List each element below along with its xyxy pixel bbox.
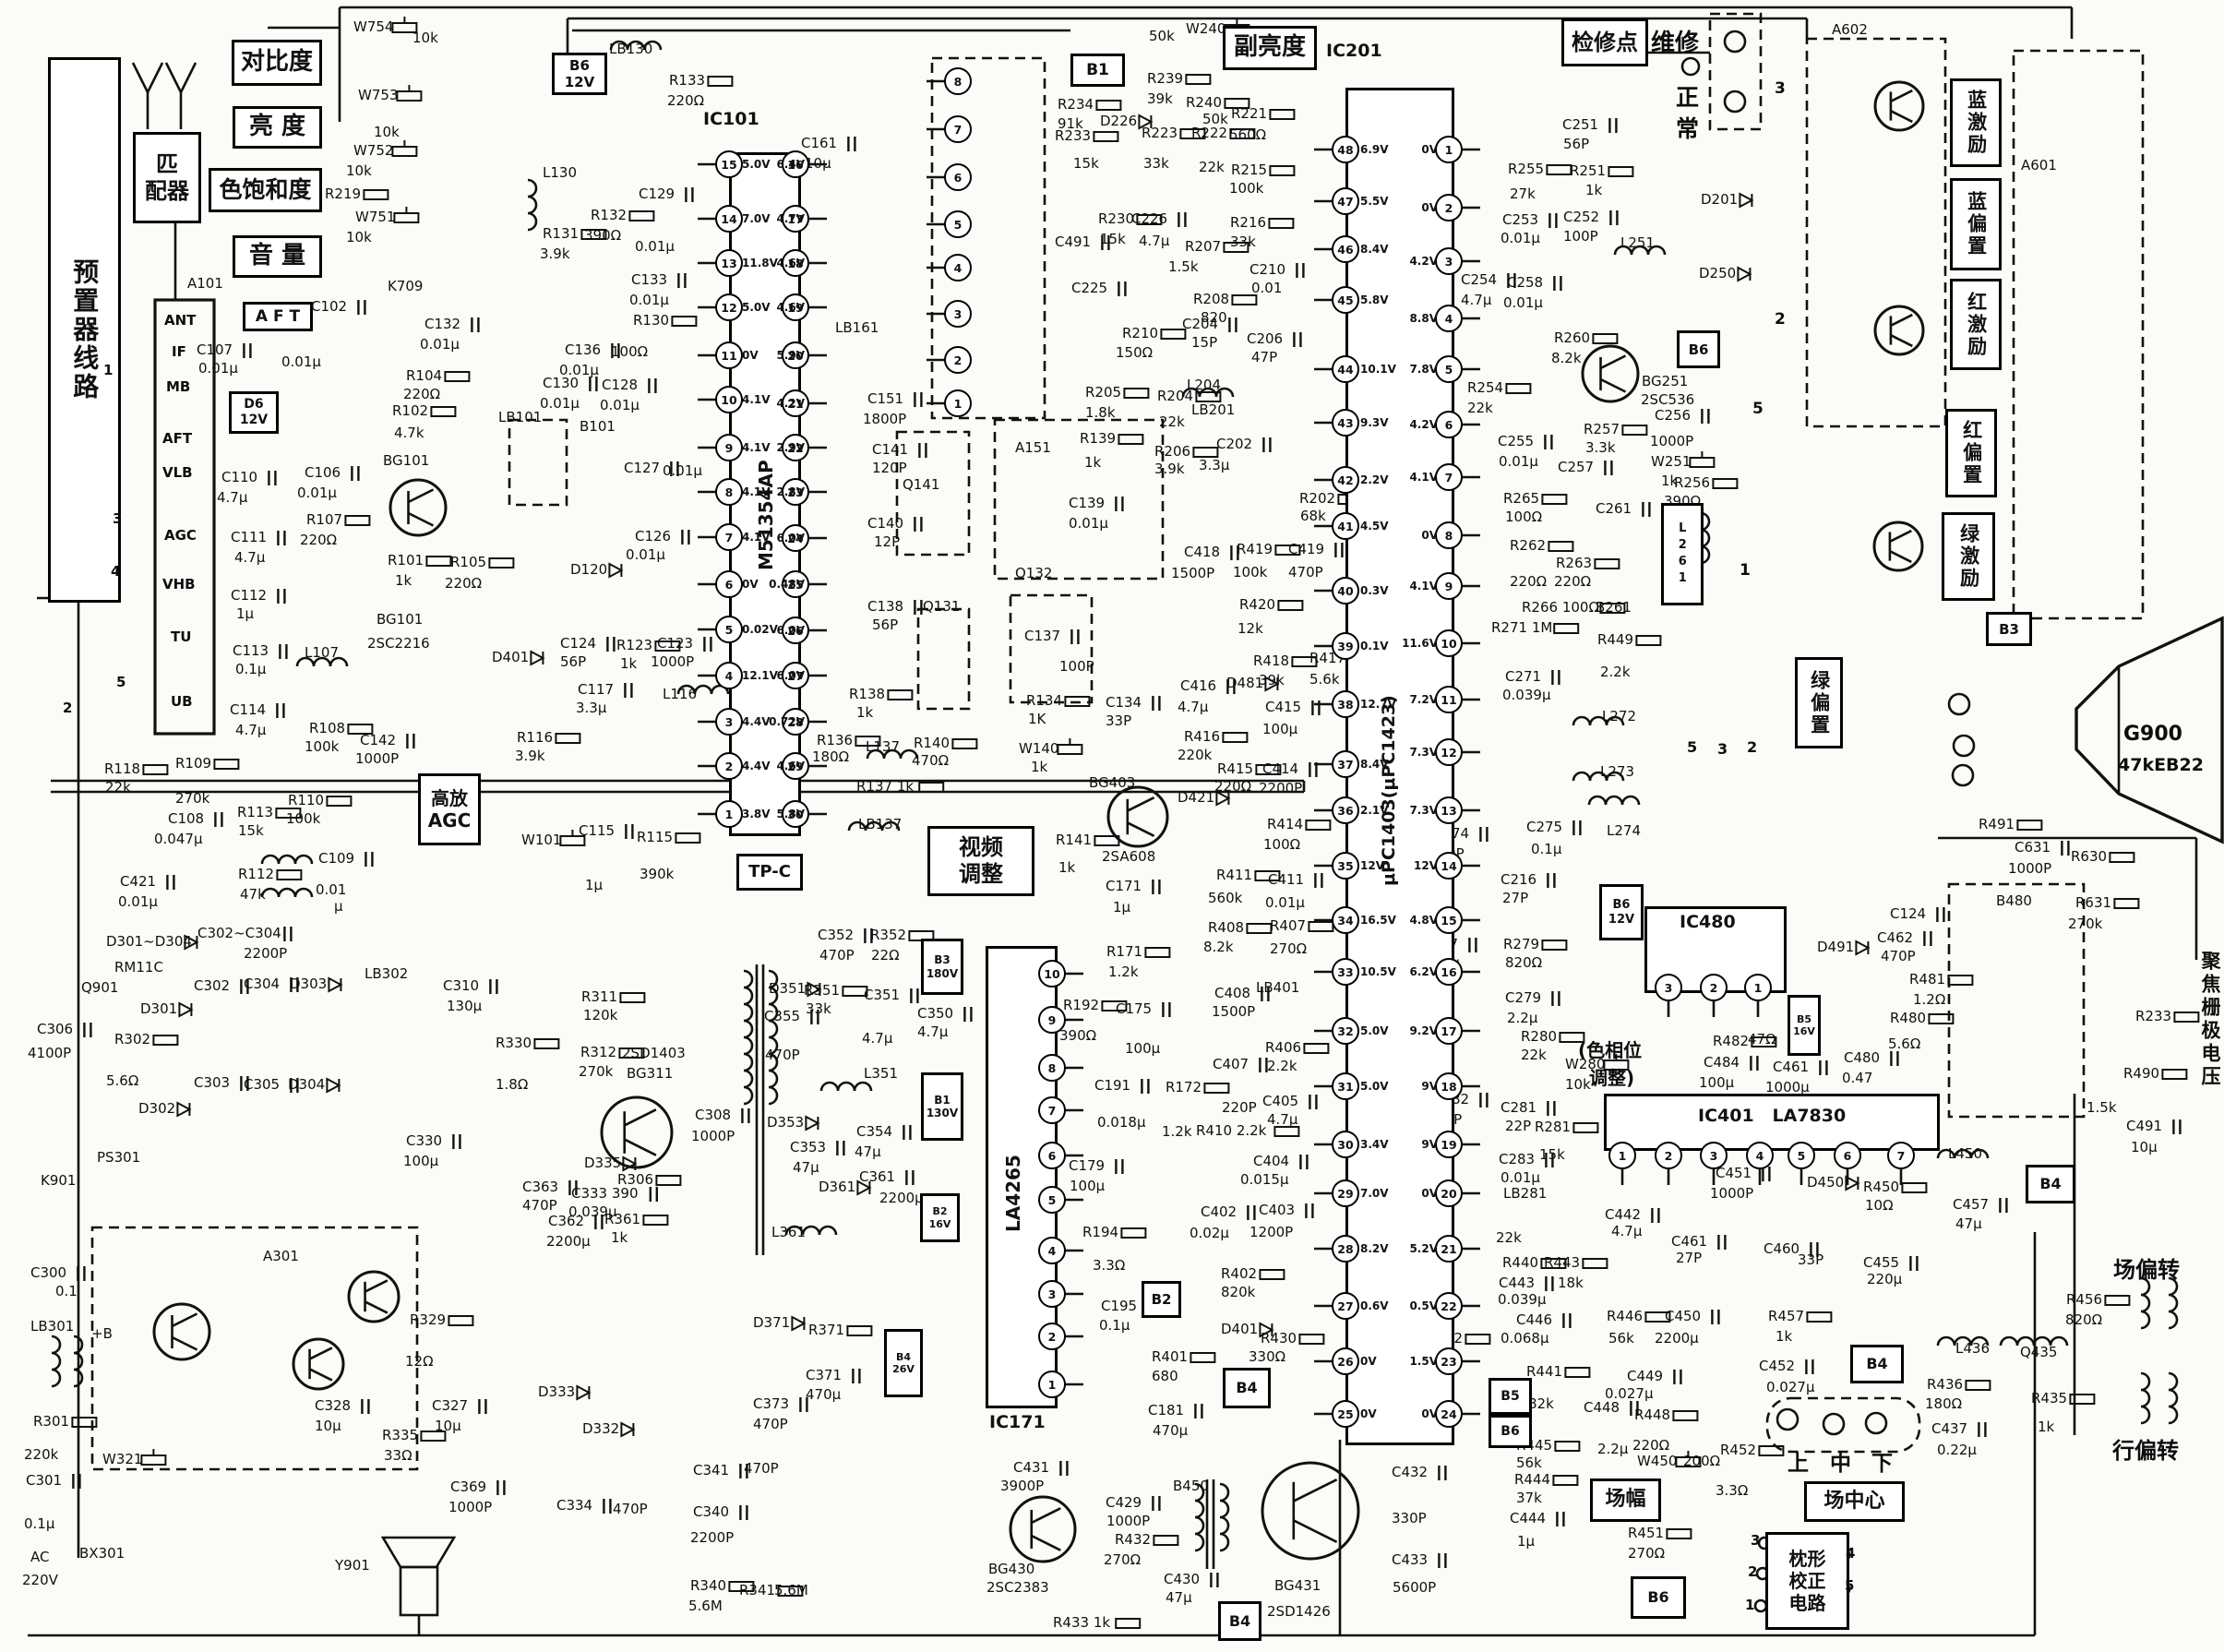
speaker-icon [383,1538,454,1567]
block-box: B4 [1223,1368,1271,1408]
component-label: 5.6Ω [1888,1037,1920,1052]
component-label: C123 [657,637,693,652]
pin-voltage: 12.7V [1360,698,1396,711]
component-label: 0.01μ [1501,232,1540,246]
component-label: 0.01μ [118,895,158,910]
component-label: 1k [1058,861,1075,876]
resistor-symbol [1554,624,1578,633]
component-label: R204 [1157,389,1193,404]
pin-voltage: 5.0V [742,301,771,314]
component-label: 3.9k [515,749,545,764]
ic-pin: 20 [1435,1179,1463,1207]
terminal-circle [1953,765,1973,785]
component-label: LB401 [1256,981,1299,996]
text-label: 2 [63,700,72,716]
component-label: 1000P [651,655,694,670]
component-label: 100Ω [611,345,648,360]
pin-voltage: 4.4V [742,715,771,728]
resistor-symbol [1807,1312,1831,1322]
component-label: C431 [1013,1461,1049,1476]
component-label: 2SC536 [1641,393,1694,408]
component-label: C127 [624,461,660,476]
resistor-symbol [1553,1476,1577,1485]
component-label: 470P [522,1199,557,1214]
ic-pin: 4 [1435,305,1463,332]
component-label: R415 [1217,762,1253,777]
component-label: 1000P [691,1130,735,1144]
pin-voltage: 5.5V [1360,195,1389,208]
pin-voltage: 0V [1360,1407,1377,1420]
component-label: 220Ω [1554,575,1591,590]
component-label: A601 [2021,159,2057,174]
block-box: 色饱和度 [209,168,322,212]
block-box: B3 180V [921,939,963,995]
component-label: C340 [693,1505,729,1520]
component-label: C108 [168,812,204,827]
ic-pin: 13 [1435,796,1463,824]
ic-pin: 3 [1700,1142,1728,1169]
component-label: R352 [870,928,906,943]
component-label: L251 [1620,236,1655,251]
component-label: R482 [1713,1035,1749,1049]
transistor-emitter [1601,379,1626,392]
text-label: MB [166,378,190,395]
pin-voltage: 4.1V [1409,471,1438,484]
component-label: D301 [140,1002,177,1017]
pin-voltage: 8.4V [1360,758,1389,771]
terminal-circle [1954,736,1974,756]
text-label: 行偏转 [2112,1432,2179,1465]
inductor-coil [2141,1373,2149,1423]
component-label: 180Ω [1925,1397,1962,1412]
component-label: C113 [233,644,269,659]
component-label: 1.2Ω [1913,993,1945,1008]
resistor-symbol [708,77,732,86]
component-label: C195 [1101,1299,1137,1314]
component-label: R411 [1216,868,1252,883]
component-label: 33P [1798,1253,1823,1268]
component-label: R202 [1299,492,1335,507]
component-label: LB302 [365,967,408,982]
component-label: 200Ω [1683,1454,1720,1469]
pin-voltage: 6.2V [1409,965,1438,978]
component-label: C446 [1516,1313,1552,1328]
resistor-symbol [1465,1335,1489,1344]
resistor-symbol [656,1176,680,1185]
component-label: 820Ω [1505,956,1542,971]
ic-label-ic171: IC171 [989,1412,1046,1432]
resistor-symbol [143,765,167,774]
ic-pin: 1 [944,389,972,417]
component-label: 0.01μ [281,355,321,370]
component-label: R255 [1508,162,1544,177]
component-label: LB101 [498,411,542,425]
component-label: 39k [1147,92,1173,107]
text-label: 2 [1748,1563,1757,1580]
text-label: 5 [1845,1577,1854,1594]
pin-voltage: 0V [1421,529,1438,542]
component-label: AC [30,1550,49,1565]
component-label: 2SC2216 [367,637,430,652]
component-label: C206 [1247,332,1283,347]
component-label: 2.2k [1267,1059,1297,1074]
resistor-symbol [1548,542,1572,551]
text-label: 3 [1717,740,1728,758]
diode-symbol [621,1423,633,1436]
component-label: 56k [1608,1332,1634,1347]
block-box: 绿激励 [1942,512,1995,601]
component-label: C300 [30,1266,66,1281]
pin-voltage: 7.0V [1360,1187,1389,1200]
component-label: 560Ω [1229,128,1266,143]
pin-voltage: 9.3V [1360,416,1389,429]
component-label: C443 [1499,1276,1535,1291]
component-label: BX301 [79,1547,125,1562]
component-label: C361 [859,1170,895,1185]
text-label: 正 [1676,79,1699,113]
component-label: 1000P [448,1501,492,1515]
component-label: W251 [1651,455,1691,470]
pin-voltage: 11.6V [1402,637,1438,650]
component-label: C448 [1584,1401,1620,1416]
component-label: R440 [1502,1256,1538,1271]
ic-pin: 7 [944,115,972,143]
component-label: 2SD1426 [1267,1605,1331,1620]
component-label: R206 [1154,445,1190,460]
block-box: 视频 调整 [927,826,1034,896]
transistor-symbol [1262,1463,1358,1559]
pin-voltage: 4.1V [1409,580,1438,593]
component-label: 2200P [1259,782,1302,796]
pin-voltage: 5.0V [742,158,771,171]
component-label: C124 [560,637,596,652]
component-label: 1K [1028,712,1046,727]
component-label: C115 [579,824,615,839]
component-label: 0.1 [55,1285,78,1299]
pin-voltage: 2.2V [1360,473,1389,486]
resistor-symbol [1204,1083,1228,1093]
ic-name-ic101: M51354AP [755,460,777,570]
ic-pin: 3 [944,300,972,328]
pin-voltage: 9.2V [1409,1024,1438,1037]
module-dashed-box [918,609,969,709]
component-label: R408 [1208,921,1244,936]
component-label: D401 [1221,1323,1258,1337]
component-label: 470P [744,1462,779,1477]
transistor-collector [1294,1479,1337,1501]
pin-voltage: 1.5V [1409,1355,1438,1368]
ic-pin: 36 [1332,796,1359,824]
component-label: 0.01μ [1501,1171,1540,1186]
component-label: R432 [1115,1533,1151,1548]
component-label: 10μ [435,1419,461,1434]
component-label: C136 [565,343,601,358]
terminal-circle [1823,1414,1844,1434]
ic-pin: 39 [1332,632,1359,660]
component-label: C204 [1182,317,1218,332]
component-label: R130 [633,314,669,329]
component-label: 4.7μ [1139,234,1169,249]
speaker-icon [401,1567,437,1615]
transistor-collector [1128,797,1154,810]
component-label: R430 [1261,1332,1297,1347]
component-label: 100μ [1262,723,1297,737]
component-label: LB201 [1191,403,1235,418]
component-label: C225 [1071,281,1107,296]
component-label: R133 [669,74,705,89]
antenna-icon [133,63,148,92]
component-label: 0.01μ [420,338,460,353]
component-label: 0.01μ [540,397,580,412]
component-label: 220V [22,1574,58,1588]
ic-pin: 17 [1435,1017,1463,1045]
component-label: A101 [187,277,223,292]
component-label: 1.2k [1162,1125,1192,1140]
component-label: C403 [1259,1203,1295,1218]
terminal-circle [1777,1409,1798,1430]
component-label: 12P [874,535,900,550]
component-label: C402 [1201,1205,1237,1220]
ic-pin: 3 [1038,1280,1066,1308]
resistor-symbol [2114,899,2138,908]
component-label: C416 [1180,679,1216,694]
ic-pin: 8 [1435,521,1463,549]
block-box: B2 [1142,1281,1181,1318]
ic-pin: 4 [1746,1142,1774,1169]
component-label: 0.01μ [1069,517,1108,532]
pin-voltage: 4.1V [742,531,771,544]
component-label: C107 [197,343,233,358]
component-label: 220Ω [300,533,337,548]
resistor-symbol [1565,1368,1589,1377]
component-label: C202 [1216,437,1252,452]
block-box: D6 12V [229,391,279,434]
component-label: 68k [1300,509,1326,524]
transistor-symbol [1108,787,1167,846]
ic-pin: 1 [1435,136,1463,163]
component-label: R266 100Ω [1522,601,1599,616]
diode-symbol [806,1117,818,1130]
component-label: Y901 [335,1559,370,1574]
component-label: 0.068μ [1501,1332,1549,1347]
component-label: 470P [819,949,855,964]
component-label: R223 [1142,126,1178,141]
component-label: 100μ [1070,1179,1105,1194]
resistor-symbol [2162,1070,2186,1079]
component-label: 1800P [863,413,906,427]
component-label: 3.3Ω [1716,1484,1748,1499]
resistor-symbol [1247,924,1271,933]
ic-pin: 8 [715,478,743,506]
inductor-coil [262,889,312,897]
resistor-symbol [277,870,301,880]
ic-pin: 3 [715,708,743,736]
pin-voltage: 5.0V [1360,1024,1389,1037]
component-label: 15k [1073,157,1099,172]
pin-voltage: 0V [1421,1187,1438,1200]
component-label: 560k [1208,892,1242,906]
pin-voltage: 0.02V [742,623,778,636]
transistor-collector [1601,356,1626,369]
text-label: 2 [1775,310,1786,329]
diode-symbol [177,1103,189,1116]
ic-pin: 6 [1038,1142,1066,1169]
component-label: A301 [263,1250,299,1264]
pin-voltage: 8.2V [1360,1242,1389,1255]
block-box: 绿偏置 [1795,657,1843,748]
resistor-symbol [1583,1259,1607,1268]
ic-pin: 11 [1435,686,1463,713]
resistor-symbol [1306,820,1330,830]
component-label: 100μ [1125,1042,1160,1057]
component-label: 5.6Ω [106,1074,138,1089]
resistor-symbol [1154,1536,1178,1545]
component-label: R137 1k [856,780,914,795]
component-label: R221 [1231,107,1267,122]
resistor-symbol [1542,940,1566,950]
component-label: 33P [1106,714,1131,729]
component-label: R233 [2135,1010,2171,1024]
component-label: C216 [1501,873,1536,888]
component-label: D335 [584,1156,621,1171]
component-label: R210 [1122,327,1158,341]
component-label: R279 [1503,938,1539,952]
component-label: 47k [240,888,266,903]
transistor-emitter [1128,822,1154,835]
component-label: C328 [315,1399,351,1414]
component-label: C354 [856,1125,892,1140]
transistor-symbol [293,1339,343,1389]
component-label: W450 [1637,1454,1677,1469]
component-label: 470P [753,1418,788,1432]
component-label: 390k [640,868,674,882]
ic-pin: 2 [1700,974,1728,1001]
text-label: 47kEB22 [2118,755,2204,775]
component-label: C301 [26,1474,62,1489]
component-label: R410 2.2k [1196,1124,1266,1139]
component-label: Q131 [923,600,960,615]
component-label: R109 [175,757,211,772]
ic-pin: 8 [1038,1054,1066,1082]
resistor-symbol [1622,425,1646,435]
resistor-symbol [1193,448,1217,457]
component-label: R131 [543,227,579,242]
component-label: C252 [1563,210,1599,225]
component-label: R240 [1186,96,1222,111]
component-label: C114 [230,703,266,718]
component-label: R132 [591,209,627,223]
component-label: C130 [543,377,579,391]
component-label: D304 [288,1078,325,1093]
component-label: C460 [1764,1242,1800,1257]
pin-voltage: 0.1V [1360,640,1389,652]
diode-symbol [577,1386,589,1399]
component-label: C151 [867,392,903,407]
diode-symbol [329,978,341,991]
ic-pin: 22 [1435,1292,1463,1320]
text-label: VHB [162,576,196,593]
component-label: L351 [864,1067,898,1082]
component-label: 0.027μ [1766,1381,1815,1395]
transistor-symbol [1010,1497,1075,1562]
pin-voltage: 4.2V [1409,418,1438,431]
ic-pin: 24 [1435,1400,1463,1428]
pin-voltage: 2.9V [776,441,805,454]
component-label: 0.01μ [198,362,238,377]
resistor-symbol [1190,1353,1214,1362]
ic-label-ic101: IC101 [703,109,759,129]
component-label: 0.1μ [1531,843,1561,857]
component-label: R263 [1556,557,1592,571]
resistor-symbol [847,1326,871,1335]
text-label: 3 [1751,1532,1760,1549]
component-label: C418 [1184,545,1220,560]
component-label: C109 [318,852,354,867]
component-label: C258 [1507,276,1543,291]
pin-voltage: 7.3V [1409,804,1438,817]
resistor-symbol [1309,922,1333,931]
component-label: BG431 [1274,1579,1321,1594]
component-label: 22Ω [871,949,900,964]
resistor-symbol [153,1035,177,1045]
block-box: 蓝偏置 [1950,178,2002,270]
pin-voltage: 0.6V [1360,1299,1389,1312]
component-label: C432 [1392,1466,1428,1480]
component-label: R208 [1193,293,1229,307]
text-label: UB [171,693,193,710]
diode-symbol [1738,268,1750,281]
resistor-symbol [2017,820,2041,830]
component-label: C256 [1655,409,1691,424]
component-label: 27k [1510,187,1536,202]
component-label: 1μ [585,879,603,893]
component-label: D450 [1807,1176,1844,1191]
component-label: 270Ω [1270,942,1307,957]
component-label: R107 [306,513,342,528]
component-label: 2SD1403 [622,1047,686,1061]
component-label: 1.5k [1168,260,1199,275]
component-label: R414 [1267,818,1303,832]
component-label: C257 [1558,461,1594,475]
transistor-collector [625,1109,656,1125]
component-label: C353 [790,1141,826,1155]
resistor-symbol [1542,495,1566,504]
component-label: 100P [1059,660,1094,675]
resistor-symbol [489,558,513,568]
text-label: 3 [1775,79,1786,98]
text-label: 1 [103,362,113,378]
resistor-symbol [1116,1619,1140,1628]
component-label: 470P [1288,566,1323,581]
component-label: R172 [1166,1081,1202,1095]
component-label: 12Ω [405,1355,434,1370]
component-label: R215 [1231,163,1267,178]
component-label: 1000P [2008,862,2051,877]
pin-voltage: 10.5V [1360,965,1396,978]
component-label: C411 [1268,873,1304,888]
component-label: C451 [1716,1167,1752,1181]
ic-pin: 29 [1332,1179,1359,1207]
component-label: 8.2k [1203,940,1234,955]
component-label: R419 [1237,543,1273,557]
terminal-circle [1682,58,1699,75]
component-label: 680 [1152,1370,1178,1384]
component-label: R141 [1056,833,1092,848]
component-label: 5.6M [774,1584,808,1598]
component-label: R115 [637,831,673,845]
component-label: 5.6k [1309,673,1340,688]
component-label: 270k [2068,917,2102,932]
